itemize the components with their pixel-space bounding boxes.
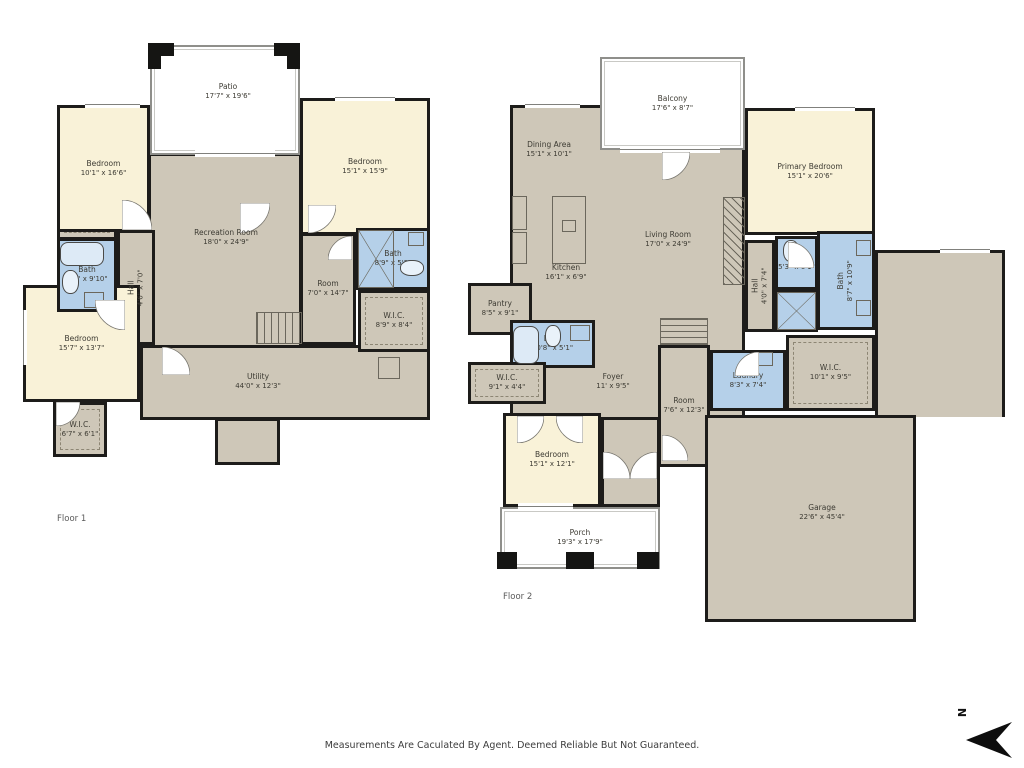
room-utility-notch — [215, 418, 280, 465]
feature-xbox — [358, 230, 394, 288]
compass-north-label: N — [955, 708, 968, 717]
door-arc — [56, 402, 80, 426]
feature-xbox — [777, 292, 816, 330]
room-label: Bedroom15'1" x 12'1" — [529, 450, 575, 470]
room-balcony: Balcony17'6" x 8'7" — [600, 57, 745, 150]
door-arc — [735, 352, 759, 376]
post — [148, 43, 161, 69]
door-arc — [95, 300, 125, 330]
floorplan-canvas: Measurements Are Caculated By Agent. Dee… — [0, 0, 1024, 768]
utility-label: Utility44'0" x 12'3" — [235, 372, 281, 392]
compass-arrow-icon — [966, 718, 1012, 762]
room-label: Hall4'6" x 7'0" — [126, 269, 146, 306]
feature-box — [856, 240, 871, 256]
room-label: Balcony17'6" x 8'7" — [652, 94, 693, 114]
feature-box — [757, 352, 773, 366]
room-wic-f2-left: W.I.C.9'1" x 4'4" — [468, 362, 546, 404]
door-arc — [662, 435, 688, 461]
feature-box — [562, 220, 576, 232]
window — [195, 150, 275, 157]
door-arc — [662, 152, 690, 180]
window — [795, 104, 855, 111]
feature-box — [856, 300, 871, 316]
door-arc — [788, 242, 814, 268]
door-arc — [517, 416, 544, 443]
room-label: W.I.C.8'9" x 8'4" — [376, 311, 413, 331]
window — [518, 503, 573, 510]
feature-toilet — [400, 260, 424, 276]
garage-label: Garage22'6" x 45'4" — [799, 503, 845, 523]
feature-hatch — [723, 197, 745, 285]
door-arc — [162, 347, 190, 375]
room-label: Room7'6" x 12'3" — [663, 396, 704, 416]
post — [287, 43, 300, 69]
room-wic-f1-right: W.I.C.8'9" x 8'4" — [358, 290, 430, 352]
room-wic-f2-right: W.I.C.10'1" x 9'5" — [786, 335, 875, 411]
feature-box — [512, 232, 527, 264]
feature-stairs-v — [256, 312, 302, 344]
feature-stairs-h — [660, 318, 708, 345]
feature-box — [408, 232, 424, 246]
room-garage-top — [875, 250, 1005, 417]
window — [940, 246, 990, 253]
room-label: Porch19'3" x 17'9" — [557, 528, 603, 548]
door-arc — [603, 452, 630, 479]
door-arc — [630, 452, 657, 479]
room-label: W.I.C.9'1" x 4'4" — [489, 373, 526, 393]
room-label: Room7'0" x 14'7" — [307, 279, 348, 299]
room-primary-bedroom: Primary Bedroom15'1" x 20'6" — [745, 108, 875, 235]
feature-toilet — [62, 270, 79, 294]
door-arc — [308, 205, 336, 233]
window — [85, 101, 140, 108]
room-label: Pantry8'5" x 9'1" — [482, 299, 519, 319]
room-hall-f2: Hall4'0" x 7'4" — [745, 240, 775, 332]
post — [566, 552, 594, 569]
disclaimer-text: Measurements Are Caculated By Agent. Dee… — [0, 740, 1024, 751]
room-label: Bedroom10'1" x 16'6" — [81, 159, 127, 179]
feature-box — [512, 196, 527, 230]
living-label: Living Room17'0" x 24'9" — [645, 230, 691, 250]
floor-1-label: Floor 1 — [57, 514, 86, 524]
room-label: Hall4'0" x 7'4" — [750, 268, 770, 305]
recreation-label: Recreation Room18'0" x 24'9" — [194, 228, 258, 248]
door-arc — [328, 236, 352, 260]
door-arc — [122, 200, 152, 230]
window — [525, 101, 580, 108]
room-label: Bedroom15'1" x 15'9" — [342, 157, 388, 177]
window — [20, 310, 27, 365]
feature-tub — [513, 326, 539, 364]
dining-label: Dining Area15'1" x 10'1" — [526, 140, 572, 160]
feature-tub — [60, 242, 104, 266]
room-label: Primary Bedroom15'1" x 20'6" — [777, 162, 842, 182]
feature-toilet — [545, 325, 561, 347]
kitchen-label: Kitchen16'1" x 6'9" — [545, 263, 586, 283]
floor-2-label: Floor 2 — [503, 592, 532, 602]
room-label: Bedroom15'7" x 13'7" — [59, 334, 105, 354]
door-arc — [556, 416, 583, 443]
post — [637, 552, 659, 569]
feature-box — [378, 357, 400, 379]
room-label: W.I.C.10'1" x 9'5" — [810, 363, 851, 383]
patio-label: Patio17'7" x 19'6" — [205, 82, 251, 102]
foyer-label: Foyer11' x 9'5" — [596, 372, 629, 392]
window — [335, 94, 395, 101]
post — [497, 552, 517, 569]
feature-box — [570, 325, 590, 341]
room-label: Bath8'7" x 10'9" — [836, 260, 856, 301]
